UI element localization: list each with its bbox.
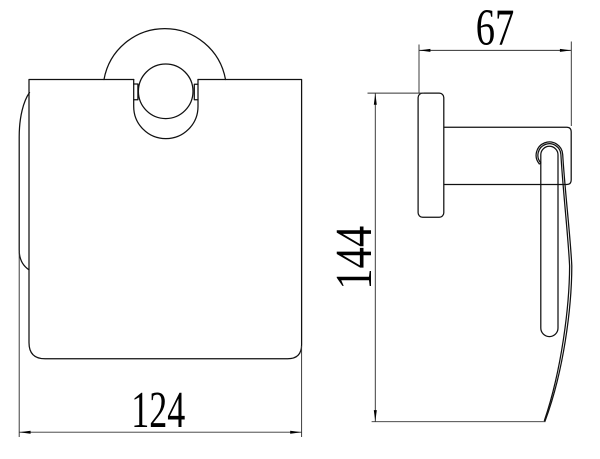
svg-text:124: 124: [131, 381, 185, 439]
svg-text:144: 144: [325, 226, 383, 290]
svg-text:67: 67: [476, 0, 515, 57]
